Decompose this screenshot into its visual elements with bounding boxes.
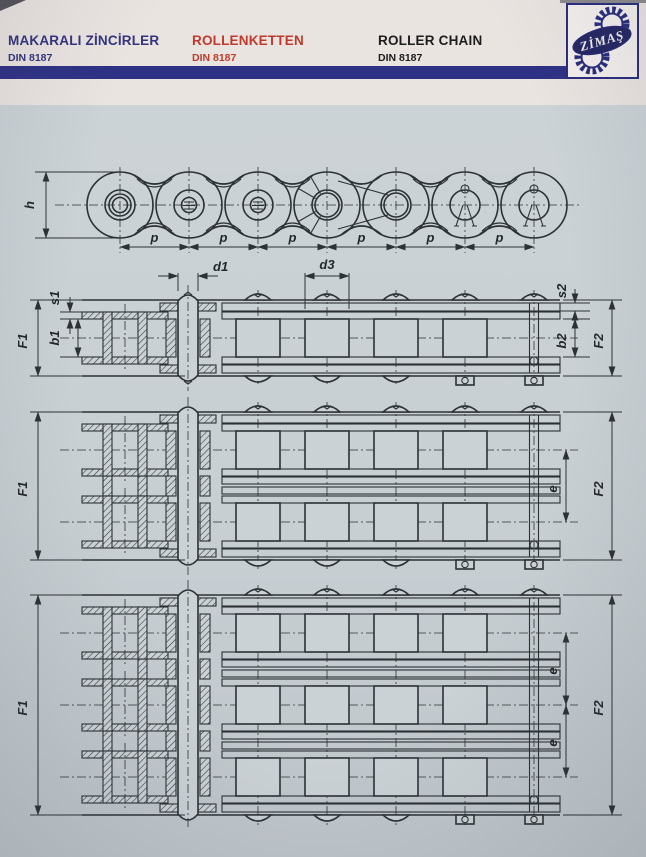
title-english: ROLLER CHAIN <box>378 33 482 48</box>
title-turkish: MAKARALI ZİNCİRLER <box>8 33 159 48</box>
dim-label-p: p <box>426 230 435 245</box>
photo-corner-artifact <box>0 0 26 11</box>
drawing-panel: h p p p p p p <box>0 105 646 857</box>
dim-label-s1: s1 <box>47 291 62 305</box>
top-view-side-elevation: h p p p p p p <box>22 167 580 253</box>
dim-label-F1: F1 <box>15 481 30 496</box>
page-header: MAKARALI ZİNCİRLER DIN 8187 ROLLENKETTEN… <box>0 0 646 105</box>
dim-label-e: e <box>545 485 560 492</box>
header-german: ROLLENKETTEN DIN 8187 <box>192 33 304 64</box>
dimension-d1: d1 <box>158 259 228 291</box>
title-german: ROLLENKETTEN <box>192 33 304 48</box>
dimension-F1-duplex: F1 <box>15 412 185 560</box>
dim-label-p: p <box>150 230 159 245</box>
dim-label-p: p <box>357 230 366 245</box>
dimension-d3: d3 <box>305 257 349 309</box>
dim-label-F2: F2 <box>591 700 606 716</box>
din-german: DIN 8187 <box>192 52 304 64</box>
dim-label-F1: F1 <box>15 700 30 715</box>
row-duplex: F1 e F2 <box>15 397 622 575</box>
header-english: ROLLER CHAIN DIN 8187 <box>378 33 482 64</box>
header-turkish: MAKARALI ZİNCİRLER DIN 8187 <box>8 33 159 64</box>
dim-label-b2: b2 <box>554 333 569 349</box>
technical-drawing: h p p p p p p <box>0 105 646 857</box>
dim-label-p: p <box>288 230 297 245</box>
dimension-F2-duplex: F2 <box>563 412 622 560</box>
navy-divider-bar <box>0 66 566 79</box>
dimension-e2-triplex: e <box>545 705 566 777</box>
dim-label-p: p <box>219 230 228 245</box>
dim-label-e: e <box>545 667 560 674</box>
dim-label-F1: F1 <box>15 333 30 348</box>
dim-label-p: p <box>495 230 504 245</box>
catalog-page: MAKARALI ZİNCİRLER DIN 8187 ROLLENKETTEN… <box>0 0 646 857</box>
dim-label-s2: s2 <box>554 283 569 298</box>
dim-label-d1: d1 <box>213 259 228 274</box>
row-simplex: F1 s1 b1 d1 <box>15 257 622 391</box>
din-english: DIN 8187 <box>378 52 482 64</box>
dimension-e1-triplex: e <box>545 633 566 705</box>
dim-label-d3: d3 <box>319 257 335 272</box>
dim-label-F2: F2 <box>591 481 606 497</box>
dimension-s1: s1 <box>47 291 103 334</box>
dim-label-h: h <box>22 201 37 209</box>
din-turkish: DIN 8187 <box>8 52 159 64</box>
zimas-logo: ZİMAŞ <box>566 3 639 79</box>
photo-edge-artifact <box>560 0 646 3</box>
dimension-e-duplex: e <box>545 450 566 522</box>
dim-label-e: e <box>545 739 560 746</box>
row-triplex: F1 e e F2 <box>15 580 622 830</box>
dim-label-F2: F2 <box>591 333 606 349</box>
dim-label-b1: b1 <box>47 330 62 345</box>
zimas-logo-art: ZİMAŞ <box>568 5 636 76</box>
